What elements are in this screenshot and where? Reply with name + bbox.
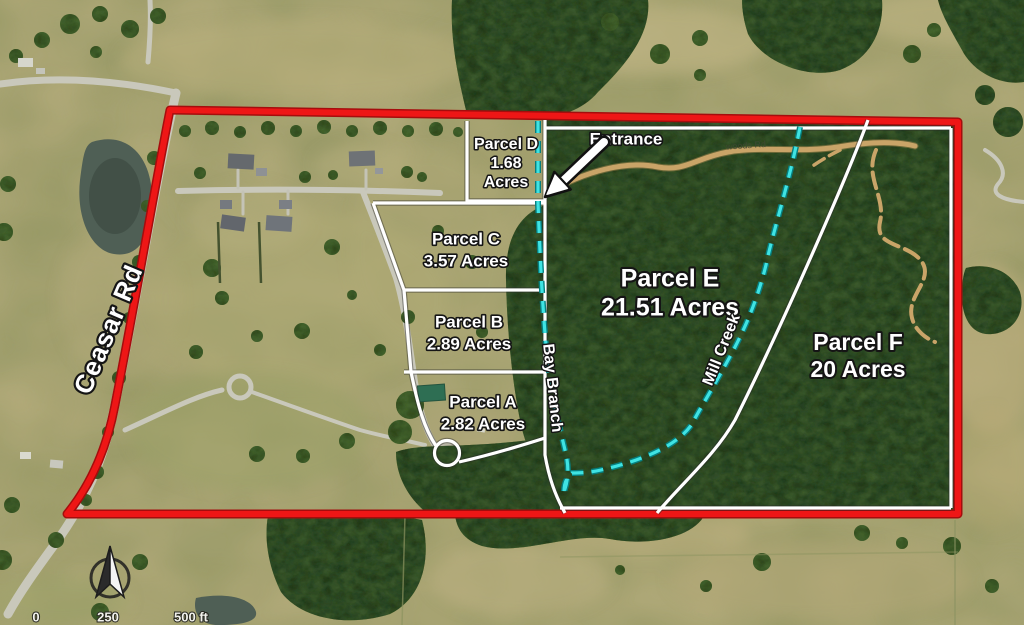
parcel-d-name: Parcel D: [474, 136, 538, 153]
parcel-b-area: 2.89 Acres: [427, 334, 511, 353]
parcel-d-area: 1.68: [490, 155, 521, 172]
parcel-b-name: Parcel B: [435, 312, 503, 331]
scale-0-label: 0: [32, 609, 39, 624]
parcel-a-name: Parcel A: [449, 392, 516, 411]
scale-500-label: 500 ft: [174, 609, 209, 624]
green-barn: [417, 384, 445, 402]
parcel-f-area: 20 Acres: [810, 356, 905, 382]
parcel-e-name: Parcel E: [621, 265, 720, 293]
scale-250-label: 250: [97, 609, 119, 624]
parcel-c-name: Parcel C: [432, 229, 500, 248]
parcel-f-name: Parcel F: [813, 329, 903, 355]
parcel-map-screenshot: woods Rd Parcel D 1.68 Acres Parcel C 3.…: [0, 0, 1024, 625]
parcel-d-area-unit: Acres: [484, 174, 529, 191]
parcel-a-area: 2.82 Acres: [441, 414, 525, 433]
parcel-c-area: 3.57 Acres: [424, 251, 508, 270]
parcel-map: woods Rd Parcel D 1.68 Acres Parcel C 3.…: [0, 0, 1024, 625]
parcel-e-area: 21.51 Acres: [601, 294, 739, 322]
